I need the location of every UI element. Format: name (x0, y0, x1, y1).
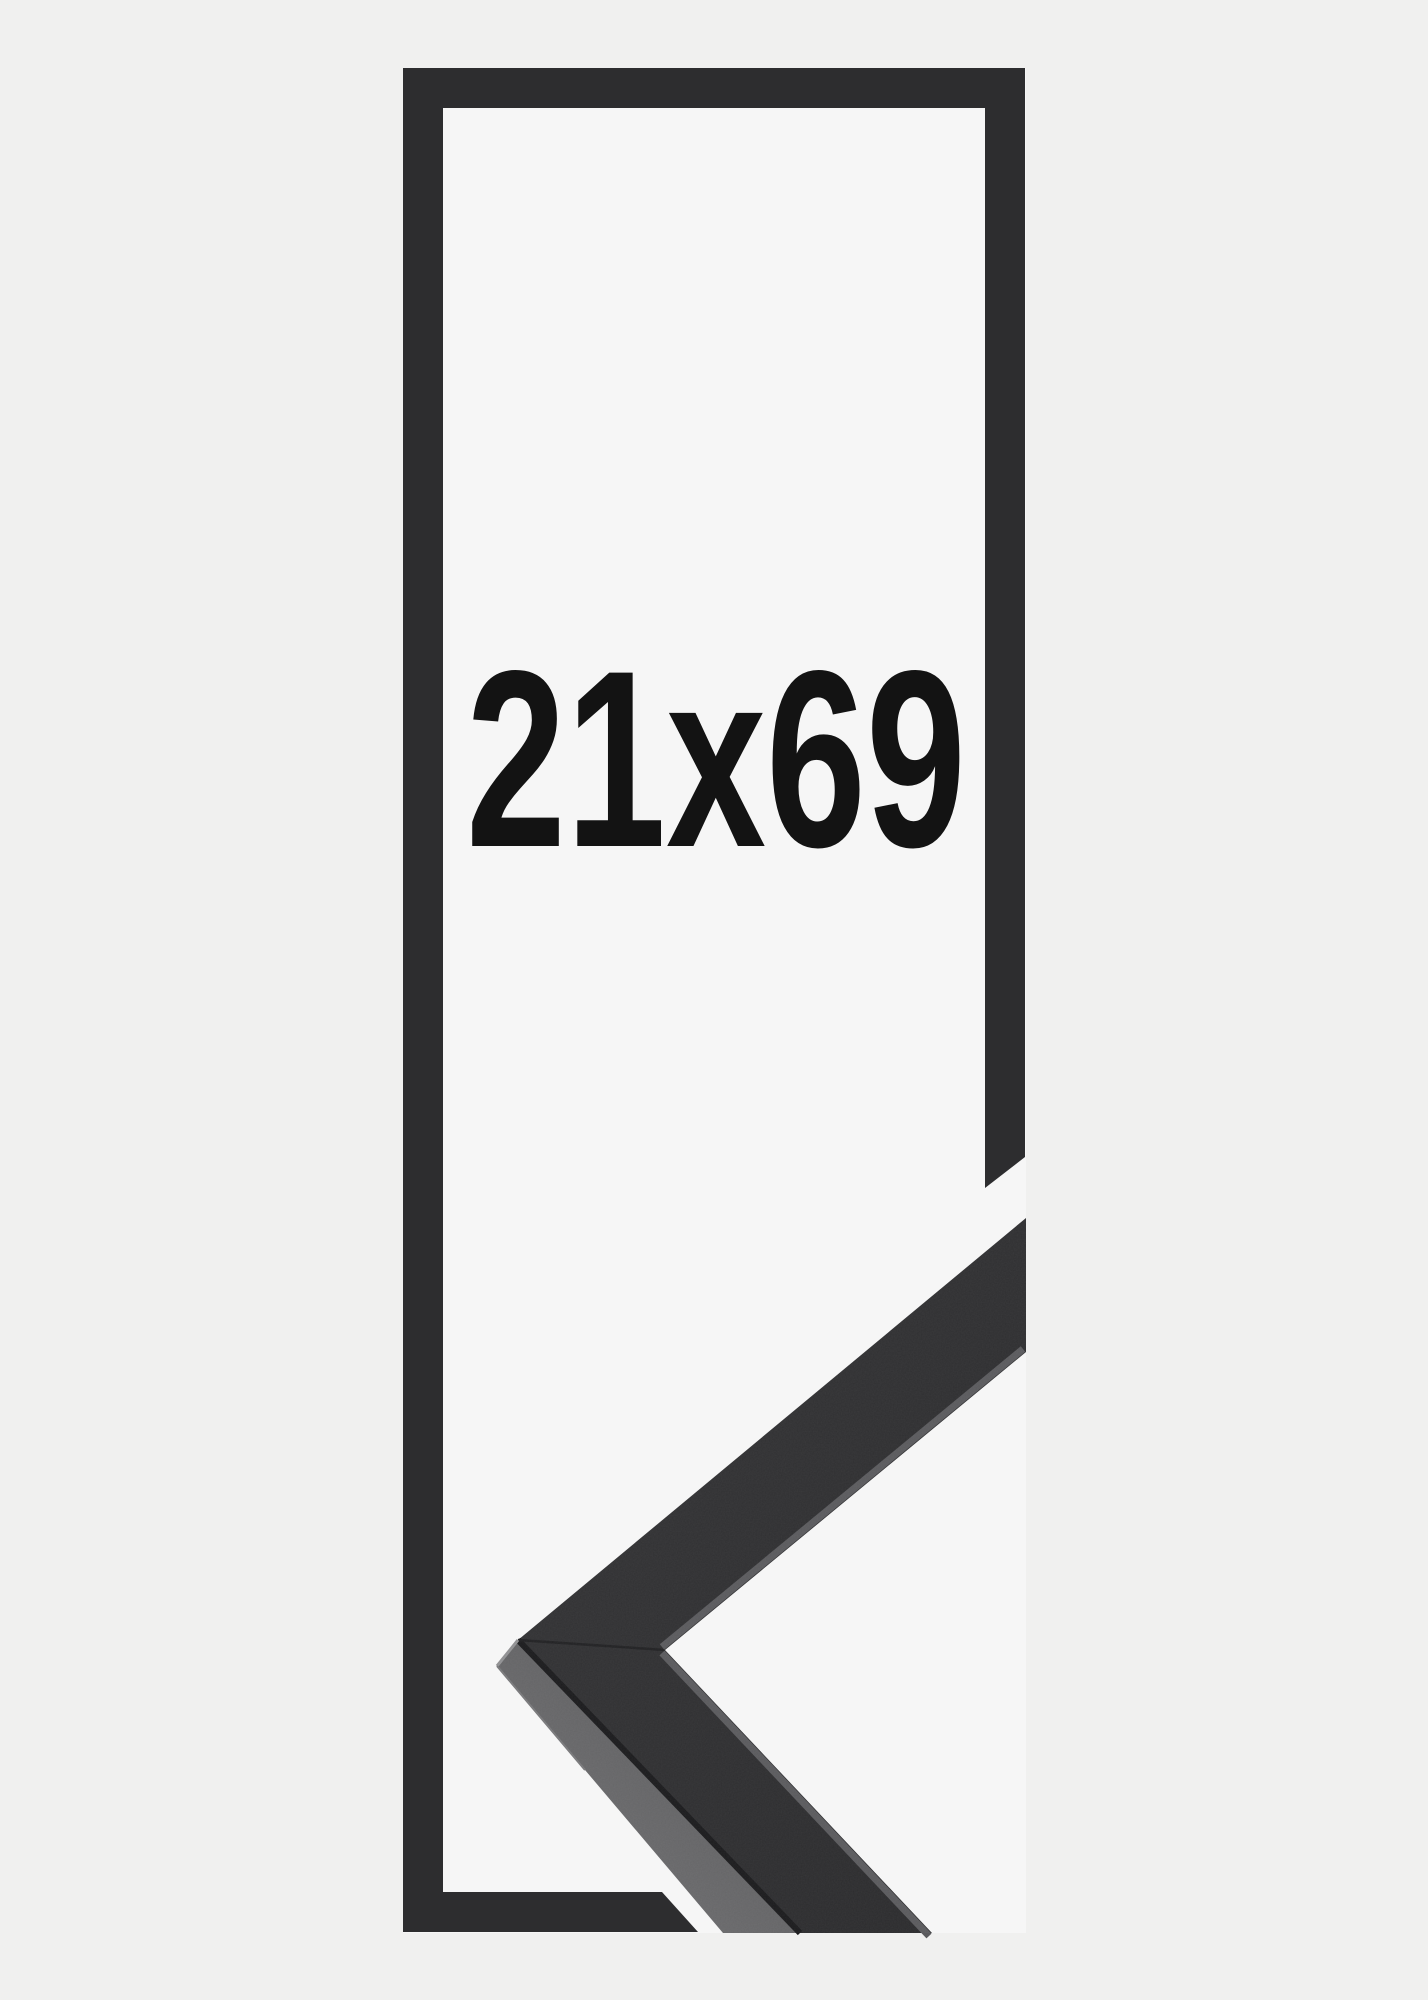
frame-outline-bottom-bar (403, 1892, 698, 1932)
product-image-canvas: 21x69 (0, 0, 1428, 2000)
photo-backdrop (403, 68, 1026, 1933)
size-label: 21x69 (466, 619, 966, 900)
frame-size-illustration: 21x69 (0, 0, 1428, 2000)
frame-outline-left-bar (403, 68, 443, 1932)
frame-outline-right-bar (985, 68, 1025, 1188)
frame-outline-top-bar (403, 68, 1025, 108)
